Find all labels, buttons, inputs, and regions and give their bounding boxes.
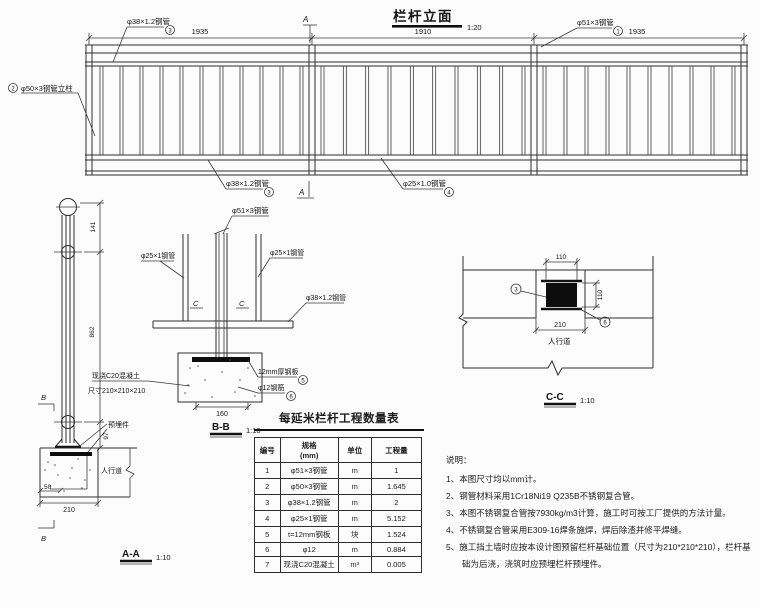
- aa-title-text: A-A: [122, 549, 140, 560]
- botrail-label-text: φ38×1.2钢管: [226, 178, 270, 188]
- table-cell: φ38×1.2钢管: [280, 495, 338, 511]
- aa-scale-text: 1:10: [156, 553, 171, 562]
- table-cell: m: [338, 543, 371, 557]
- toprail-label-text: φ38×1.2钢管: [127, 16, 171, 26]
- quantity-table-block: 每延米栏杆工程数量表 编号规格 (mm)单位工程量 1φ51×3钢管m12φ50…: [254, 410, 424, 573]
- aa-dim-top: 141: [90, 221, 97, 232]
- label-baluster: φ25×1.0钢管 4: [381, 158, 454, 197]
- table-cell: 1.645: [371, 479, 421, 495]
- post-balloon: 2: [11, 87, 15, 93]
- table-cell: 4: [255, 511, 281, 527]
- rebar-balloon: 6: [289, 395, 293, 401]
- table-cell: 3: [255, 495, 281, 511]
- bb-concrete-text2: 尺寸210×210×210: [88, 386, 145, 395]
- bb-center-label: φ51×3钢管: [223, 205, 269, 234]
- b-bottom-letter: B: [41, 534, 46, 543]
- table-header-cell: 编号: [255, 438, 281, 463]
- table-cell: 5.152: [371, 511, 421, 527]
- note-item: 3、本图不锈钢复合管按7930kg/m3计算，施工时可按工厂提供的方法计量。: [446, 505, 758, 522]
- cc-left-balloon: 3: [511, 284, 546, 297]
- table-cell: 1.524: [371, 527, 421, 543]
- table-cell: φ12: [280, 543, 338, 557]
- bb-left-label: φ25×1钢管: [141, 251, 184, 278]
- note-item: 5、施工挡土墙时应按本设计图预留栏杆基础位置（尺寸为210*210*210），栏…: [446, 539, 758, 573]
- cc-scale-text: 1:10: [580, 396, 595, 405]
- table-cell: 1: [255, 463, 281, 479]
- concrete-dots: [184, 359, 256, 398]
- embed-label-text: 预埋件: [108, 420, 129, 429]
- section-a-bottom-letter: A: [298, 188, 304, 197]
- label-toprail: φ38×1.2钢管 3: [113, 16, 175, 62]
- table-cell: m: [338, 495, 371, 511]
- bb-rail-text: φ38×1.2钢管: [306, 293, 346, 302]
- dim-panel-mid: 1910: [415, 27, 432, 36]
- table-cell: φ51×3钢管: [280, 463, 338, 479]
- elevation-view: 1935 1910 1935 栏杆立面 1:20 φ38×1.2钢管 3 φ51…: [9, 8, 749, 198]
- aa-title: A-A 1:10: [120, 549, 171, 564]
- table-row: 2φ50×3钢管m1.645: [255, 479, 422, 495]
- table-row: 4φ25×1钢管m5.152: [255, 511, 422, 527]
- c-right-letter: C: [239, 299, 245, 308]
- note-item: 2、钢管材料采用1Cr18Ni19 Q235B不锈钢复合管。: [446, 488, 758, 505]
- bb-rebar-text: φ12钢筋: [258, 383, 284, 392]
- post-label-text: φ50×3钢管立柱: [21, 83, 73, 93]
- table-cell: φ50×3钢管: [280, 479, 338, 495]
- cc-dim-bottom: 210: [554, 322, 566, 329]
- label-handrail: φ51×3钢管 1: [541, 17, 623, 47]
- toprail-balloon: 3: [168, 29, 172, 35]
- bb-concrete-text1: 现浇C20混凝土: [92, 371, 140, 380]
- aa-dim-50: 50: [44, 484, 52, 491]
- table-cell: 2: [255, 479, 281, 495]
- handrail-balloon: 1: [616, 30, 620, 36]
- table-cell: 1: [371, 463, 421, 479]
- aa-dim-bot: 97: [103, 432, 110, 440]
- table-row: 1φ51×3钢管m1: [255, 463, 422, 479]
- quantity-table-title: 每延米栏杆工程数量表: [254, 410, 424, 431]
- cc-title-text: C-C: [546, 392, 564, 403]
- table-cell: 现浇C20混凝土: [280, 557, 338, 573]
- quantity-table: 编号规格 (mm)单位工程量 1φ51×3钢管m12φ50×3钢管m1.6453…: [254, 437, 422, 573]
- elevation-scale: 1:20: [467, 23, 482, 32]
- table-cell: φ25×1钢管: [280, 511, 338, 527]
- c-left-letter: C: [193, 299, 199, 308]
- section-bb-view: C C 160 φ51×3钢管 φ25×1钢管: [88, 205, 346, 437]
- table-cell: 6: [255, 543, 281, 557]
- bb-width-dim: [193, 402, 251, 410]
- table-header-cell: 单位: [338, 438, 371, 463]
- bb-center-text: φ51×3钢管: [232, 205, 269, 215]
- bb-rail-label: φ38×1.2钢管: [288, 293, 346, 322]
- aa-dim-mid: 862: [89, 326, 96, 337]
- table-body: 1φ51×3钢管m12φ50×3钢管m1.6453φ38×1.2钢管m24φ25…: [255, 463, 422, 573]
- cc-title: C-C 1:10: [544, 392, 595, 407]
- table-header-cell: 工程量: [371, 438, 421, 463]
- label-post: 2 φ50×3钢管立柱: [9, 83, 96, 136]
- bb-plate-label: 12mm厚钢板 5: [248, 360, 308, 385]
- table-cell: 0.005: [371, 557, 421, 573]
- bb-concrete-label: 现浇C20混凝土 尺寸210×210×210: [88, 371, 190, 395]
- bb-right-label: φ25×1钢管: [258, 248, 304, 277]
- aa-foundation: [40, 448, 137, 497]
- section-c-marks: C C: [190, 299, 249, 308]
- bb-foundation: [178, 353, 262, 402]
- cc-dim-right: 110: [597, 289, 604, 300]
- table-cell: m: [338, 463, 371, 479]
- bb-right-text: φ25×1钢管: [270, 248, 304, 257]
- bb-left-text: φ25×1钢管: [141, 251, 175, 260]
- notes-title: 说明：: [446, 452, 758, 469]
- cc-left-no: 3: [514, 288, 518, 294]
- table-row: 7现浇C20混凝土m³0.005: [255, 557, 422, 573]
- table-header-row: 编号规格 (mm)单位工程量: [255, 438, 422, 463]
- aa-dim-210: 210: [63, 507, 75, 514]
- bb-title-text: B-B: [212, 422, 230, 433]
- table-row: 3φ38×1.2钢管m2: [255, 495, 422, 511]
- table-cell: m³: [338, 557, 371, 573]
- table-row: 5t=12mm钢板块1.524: [255, 527, 422, 543]
- cc-right-no: 6: [603, 321, 607, 327]
- section-cc-view: 110 110 210 3 6 人行道 C-C 1:10: [459, 254, 653, 407]
- dim-panel-left: 1935: [192, 27, 209, 36]
- cc-dim-top: 110: [556, 254, 567, 261]
- plate-balloon: 5: [301, 379, 305, 385]
- note-item: 4、不锈钢复合管采用E309-16焊条施焊，焊后除渣并修平焊缝。: [446, 522, 758, 539]
- notes-block: 说明： 1、本图尺寸均以mm计。2、钢管材料采用1Cr18Ni19 Q235B不…: [446, 452, 758, 573]
- section-a-top-letter: A: [302, 15, 308, 24]
- handrail-label-text: φ51×3钢管: [577, 17, 614, 27]
- aa-sidewalk-label: 人行道: [101, 466, 122, 475]
- label-botrail: φ38×1.2钢管 3: [208, 160, 274, 197]
- drawing-sheet: 1935 1910 1935 栏杆立面 1:20 φ38×1.2钢管 3 φ51…: [0, 0, 760, 608]
- bb-plate-text: 12mm厚钢板: [258, 367, 298, 376]
- table-cell: 7: [255, 557, 281, 573]
- dim-panel-right: 1935: [629, 27, 646, 36]
- table-header-cell: 规格 (mm): [280, 438, 338, 463]
- table-cell: 块: [338, 527, 371, 543]
- aa-vertical-dims: [80, 200, 104, 451]
- table-cell: 2: [371, 495, 421, 511]
- bb-dim-160: 160: [216, 411, 228, 418]
- table-cell: 0.884: [371, 543, 421, 557]
- elevation-title: 栏杆立面: [393, 8, 453, 24]
- table-cell: m: [338, 479, 371, 495]
- botrail-balloon: 3: [267, 191, 271, 197]
- table-cell: 5: [255, 527, 281, 543]
- b-top-letter: B: [41, 393, 46, 402]
- baluster-balloon: 4: [447, 191, 451, 197]
- bb-rebar-label: φ12钢筋 6: [238, 383, 296, 401]
- baluster-label-text: φ25×1.0钢管: [403, 178, 447, 188]
- elevation-balusters: [100, 66, 735, 155]
- notes-list: 1、本图尺寸均以mm计。2、钢管材料采用1Cr18Ni19 Q235B不锈钢复合…: [446, 471, 758, 573]
- title-underline: [392, 25, 462, 28]
- note-item: 1、本图尺寸均以mm计。: [446, 471, 758, 488]
- table-cell: m: [338, 511, 371, 527]
- table-cell: t=12mm钢板: [280, 527, 338, 543]
- cc-sidewalk-label: 人行道: [548, 336, 571, 346]
- table-row: 6φ12m0.884: [255, 543, 422, 557]
